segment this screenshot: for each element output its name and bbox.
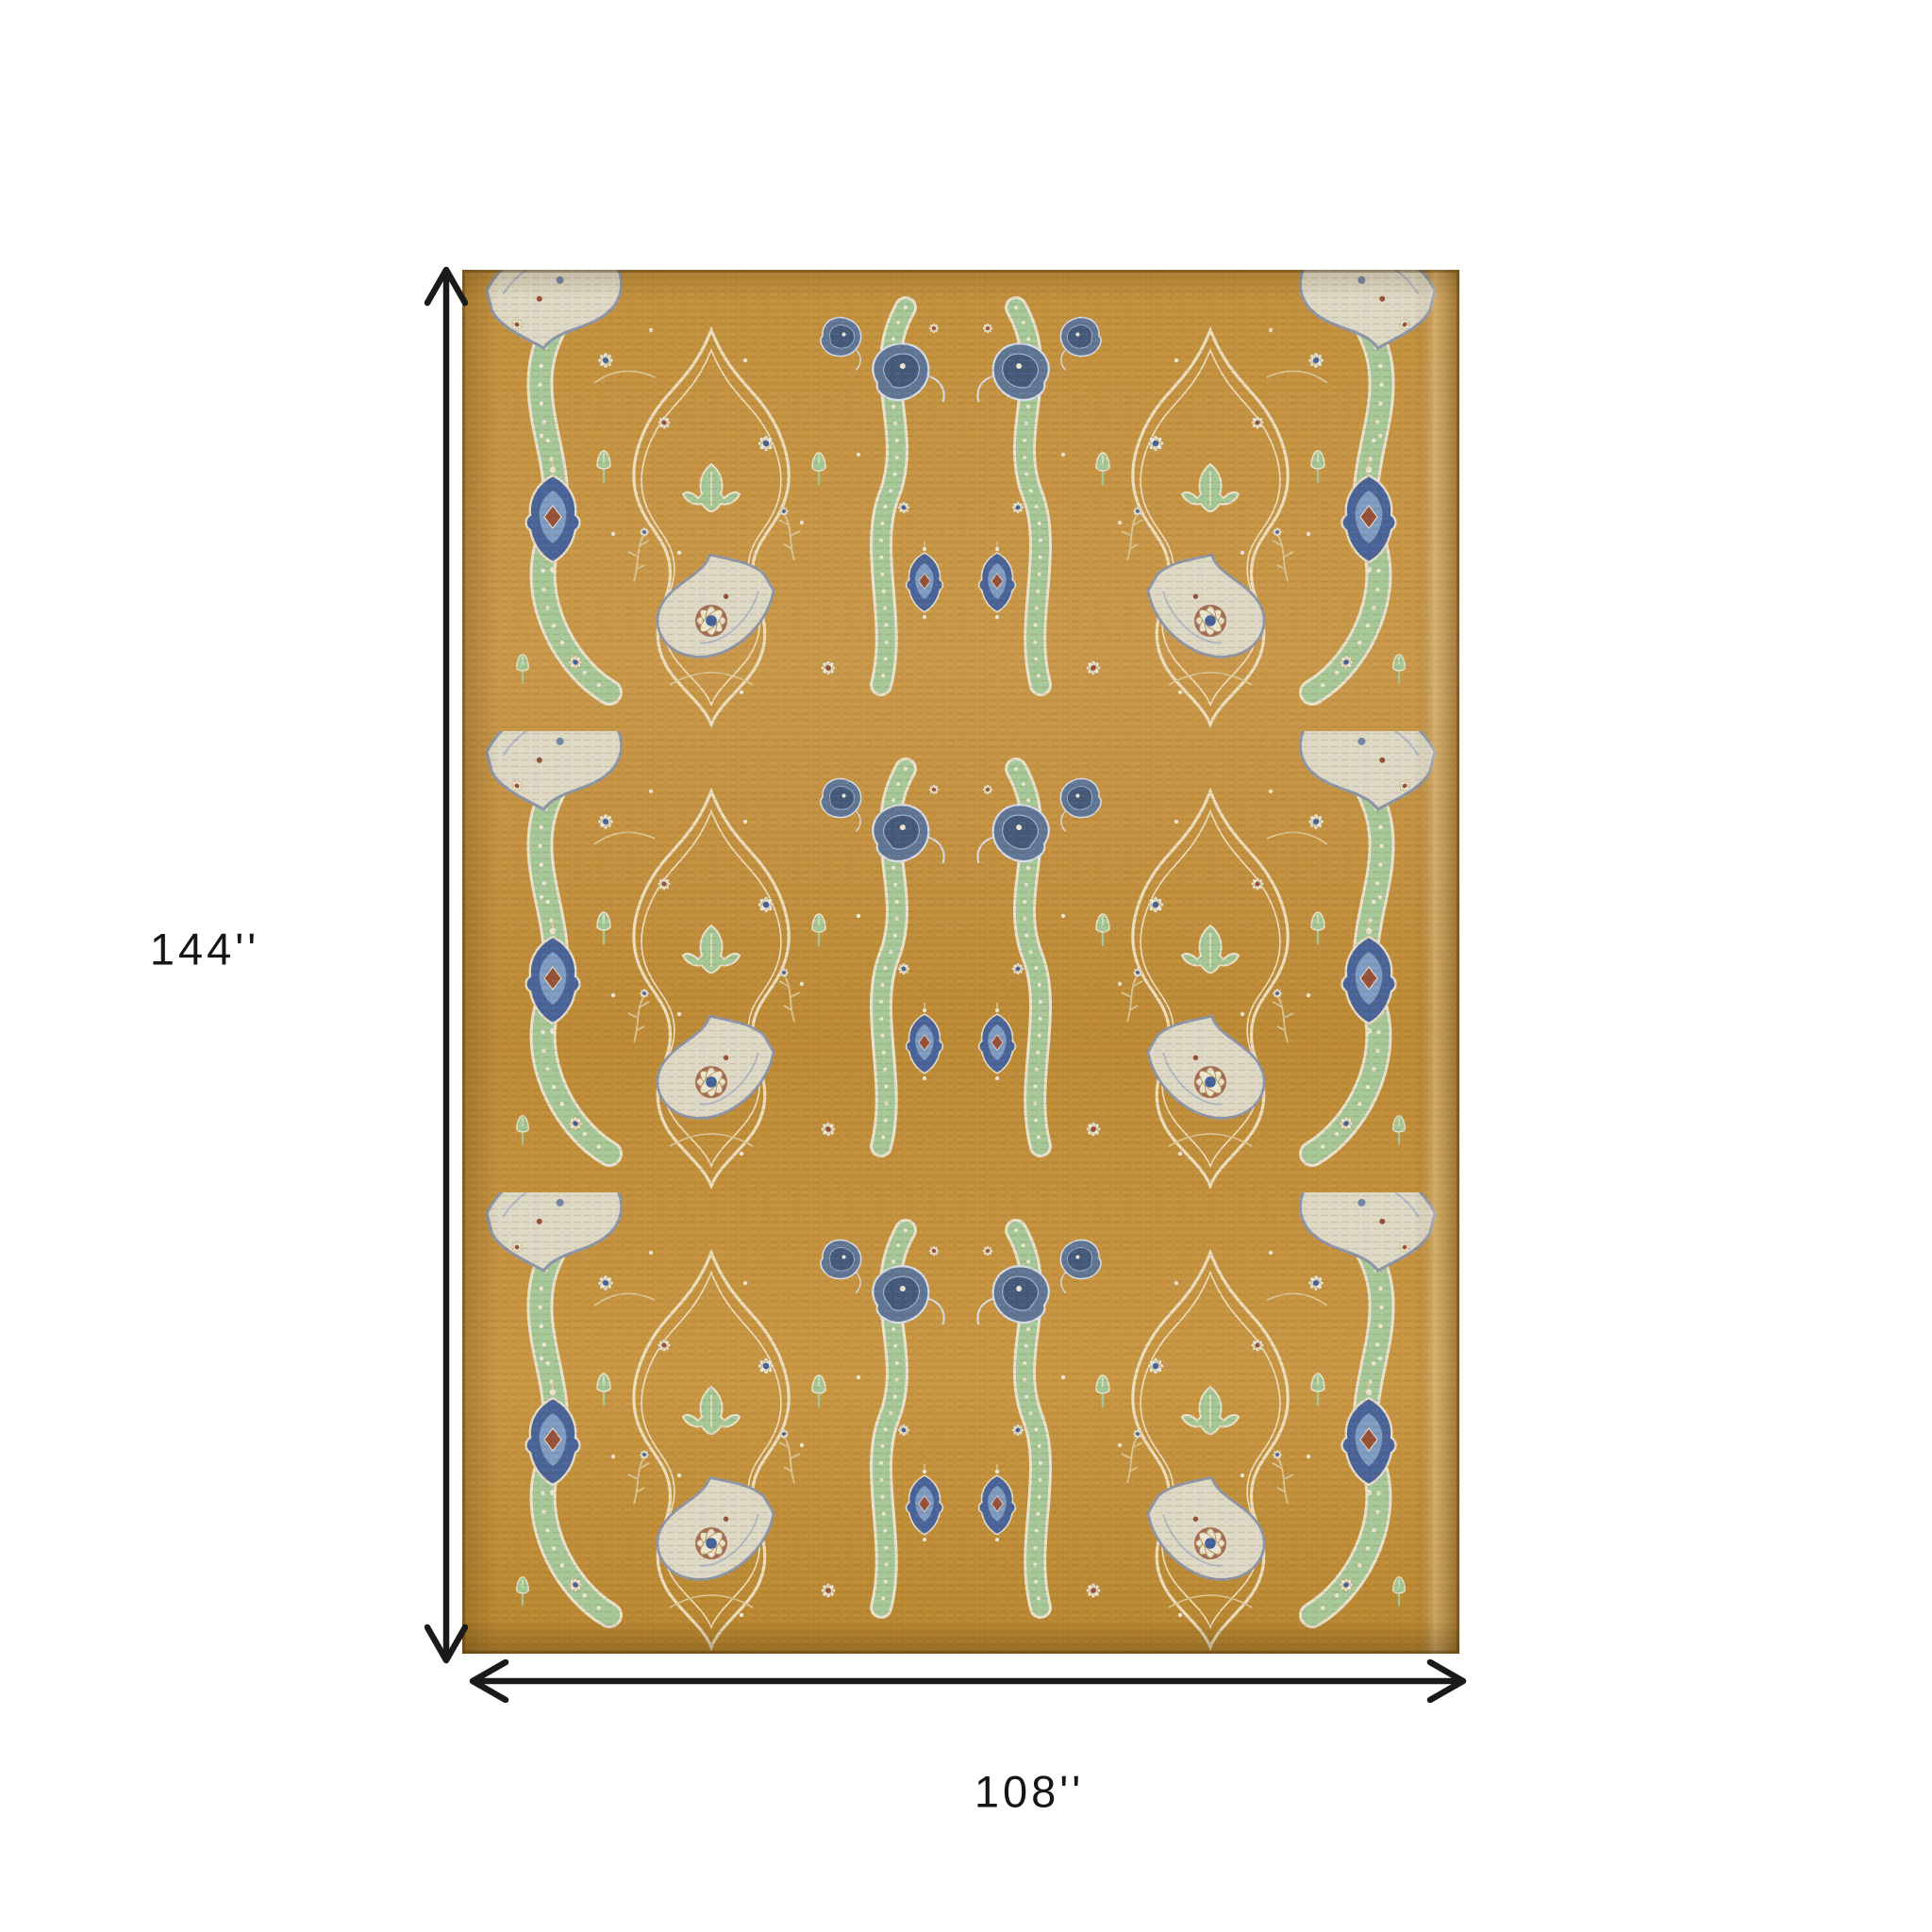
product-dimension-figure: 144'' 108'' (0, 0, 1932, 1932)
height-arrow-icon (425, 261, 468, 1669)
width-dimension-label: 108'' (974, 1766, 1084, 1818)
rug-image (462, 270, 1459, 1654)
rug-pattern-svg (462, 270, 1459, 1654)
width-arrow-icon (466, 1659, 1470, 1703)
height-dimension-label: 144'' (150, 924, 259, 975)
